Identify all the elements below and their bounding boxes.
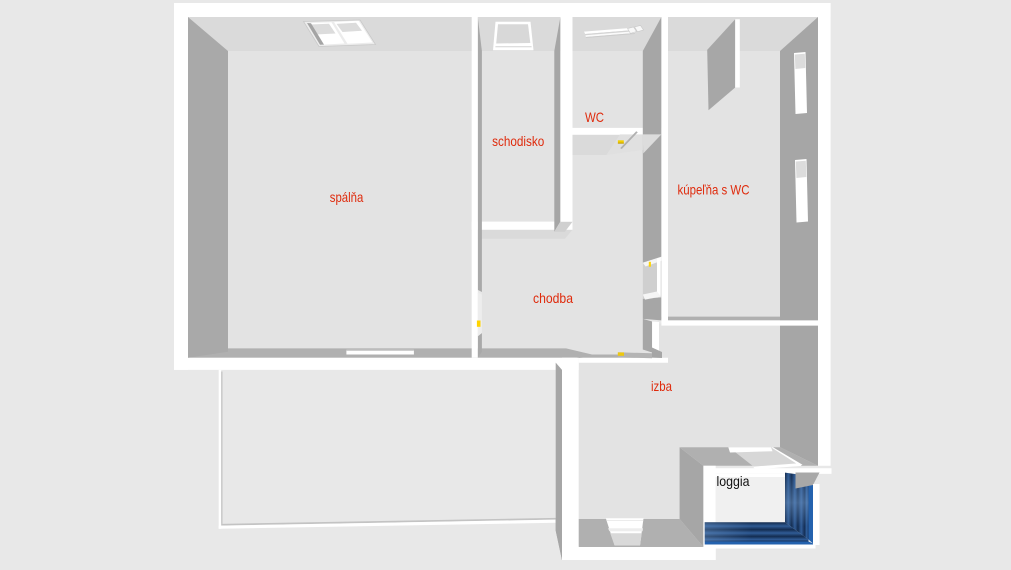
svg-text:kúpeľňa s WC: kúpeľňa s WC xyxy=(678,181,750,197)
svg-text:spálňa: spálňa xyxy=(330,189,364,205)
svg-text:loggia: loggia xyxy=(717,473,750,489)
svg-text:WC: WC xyxy=(585,109,604,125)
svg-text:schodisko: schodisko xyxy=(492,133,544,149)
svg-text:chodba: chodba xyxy=(533,290,573,306)
svg-text:izba: izba xyxy=(651,378,672,394)
